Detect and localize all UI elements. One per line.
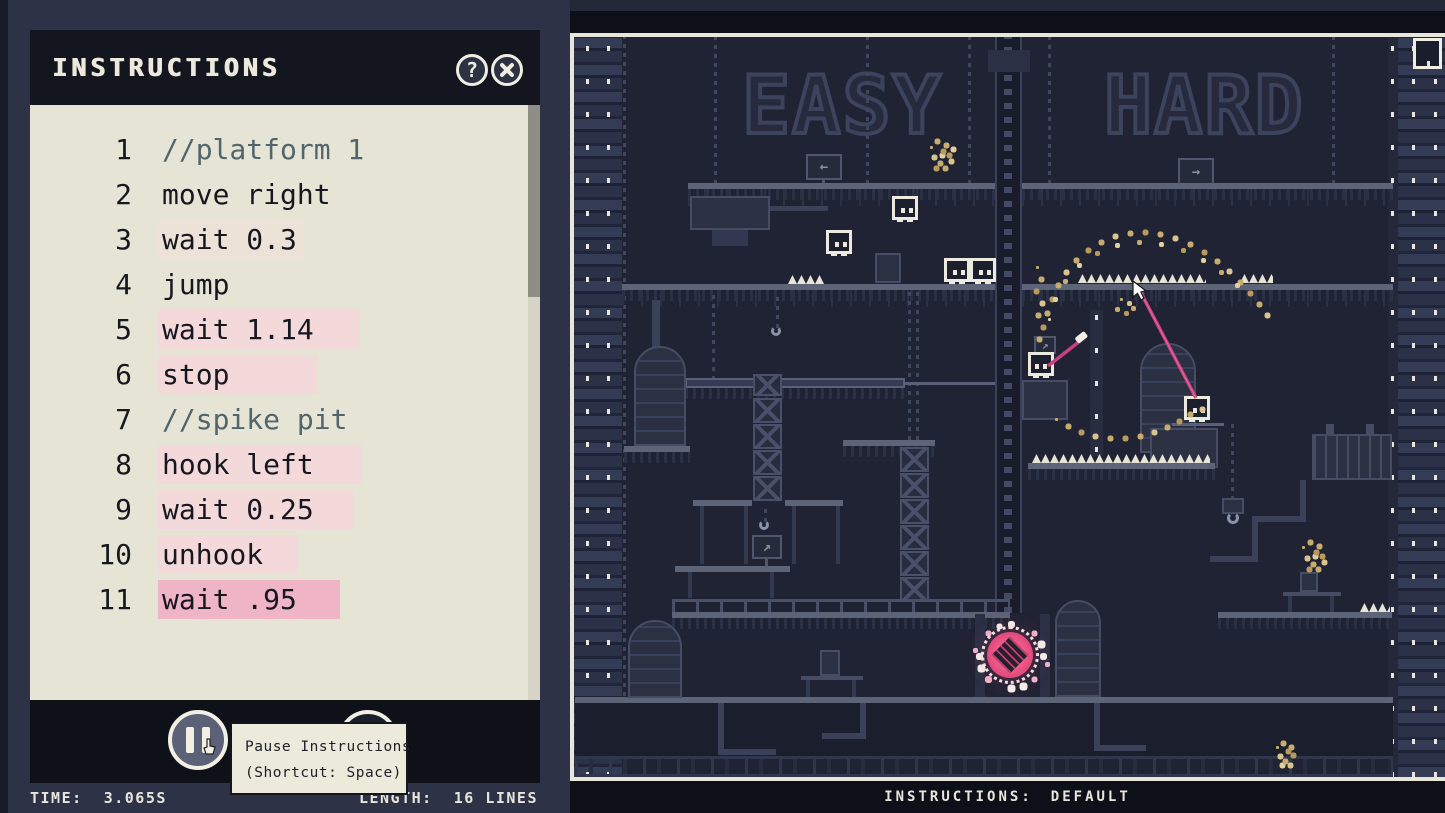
pause-icon [186,727,194,753]
panel-title: INSTRUCTIONS [52,53,281,82]
code-line[interactable]: 2move right [30,172,540,217]
code-line[interactable]: 7//spike pit [30,397,540,442]
line-number: 8 [30,448,158,481]
tooltip-line1: Pause Instructions [245,734,406,760]
pause-tooltip: Pause Instructions (Shortcut: Space) [230,722,408,795]
code-editor[interactable]: 1//platform 12move right3wait 0.34jump5w… [30,105,540,700]
line-text: wait .95 [158,580,340,619]
status-label: INSTRUCTIONS: [884,789,1033,805]
hand-cursor-icon [202,738,218,756]
code-line[interactable]: 4jump [30,262,540,307]
pause-button[interactable] [168,710,228,770]
game-status-bar: INSTRUCTIONS: DEFAULT [570,781,1445,813]
code-line[interactable]: 3wait 0.3 [30,217,540,262]
left-edge-strip [0,0,8,813]
question-icon: ? [466,58,478,82]
line-text: //spike pit [158,400,353,439]
line-number: 9 [30,493,158,526]
line-text: stop [158,355,318,394]
help-button[interactable]: ? [456,54,488,86]
line-text: wait 0.3 [158,220,303,259]
code-line[interactable]: 5wait 1.14 [30,307,540,352]
editor-scrollbar-thumb[interactable] [528,105,540,297]
grapple-line [1048,341,1080,366]
app-root: INSTRUCTIONS ? 1//platform 12move right3… [0,0,1445,813]
line-number: 5 [30,313,158,346]
line-number: 1 [30,133,158,166]
settings-button[interactable] [491,54,523,86]
grapple-line-highlight [1141,293,1196,398]
line-number: 3 [30,223,158,256]
line-text: hook left [158,445,362,484]
mouse-cursor [1133,281,1146,300]
code-line[interactable]: 6stop [30,352,540,397]
line-number: 11 [30,583,158,616]
code-line[interactable]: 10unhook [30,532,540,577]
line-text: jump [158,265,235,304]
code-line[interactable]: 1//platform 1 [30,127,540,172]
tooltip-line2: (Shortcut: Space) [245,760,406,786]
line-text: //platform 1 [158,130,370,169]
line-number: 10 [30,538,158,571]
line-text: unhook [158,535,298,574]
line-number: 4 [30,268,158,301]
code-line[interactable]: 9wait 0.25 [30,487,540,532]
line-text: wait 1.14 [158,310,360,349]
line-number: 2 [30,178,158,211]
code-line[interactable]: 11wait .95 [30,577,540,622]
time-readout: TIME: 3.065S [30,789,167,807]
status-value: DEFAULT [1051,789,1131,805]
code-lines: 1//platform 12move right3wait 0.34jump5w… [30,127,540,622]
line-text: wait 0.25 [158,490,354,529]
line-text: move right [158,175,337,214]
grapple-overlay [570,0,1445,813]
line-number: 6 [30,358,158,391]
line-number: 7 [30,403,158,436]
code-line[interactable]: 8hook left [30,442,540,487]
